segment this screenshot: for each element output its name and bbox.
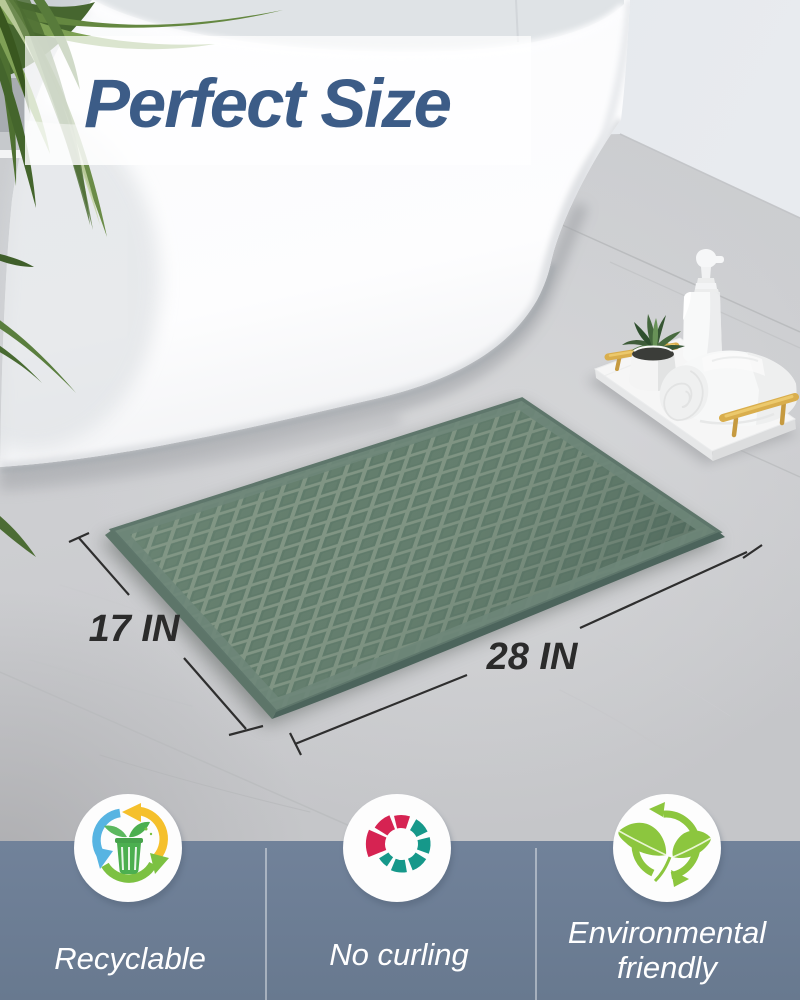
- svg-text:Perfect Size: Perfect Size: [84, 65, 452, 142]
- svg-text:Environmental: Environmental: [568, 915, 767, 950]
- svg-text:Recyclable: Recyclable: [54, 941, 206, 976]
- svg-text:17 IN: 17 IN: [89, 608, 181, 650]
- svg-text:friendly: friendly: [617, 950, 719, 985]
- svg-text:No curling: No curling: [329, 937, 469, 972]
- svg-text:28 IN: 28 IN: [486, 636, 579, 678]
